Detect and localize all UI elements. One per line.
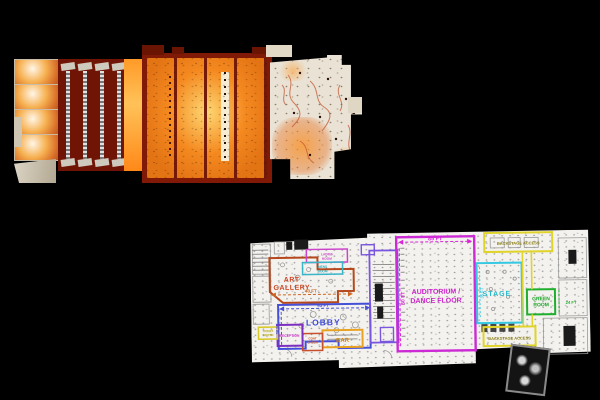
mens-room-label: MENS — [318, 265, 327, 269]
bar-label: BAR — [336, 338, 350, 344]
scan-vein-lines — [270, 55, 362, 179]
ladies-room-label: ROOM — [322, 257, 332, 261]
scan-room-tile — [14, 59, 60, 86]
scan-roof-tab — [142, 45, 164, 55]
auditorium-label: DANCE FLOOR — [410, 297, 461, 305]
coat-check-label: CHECK — [307, 340, 319, 344]
scan-noise — [147, 58, 267, 178]
truss-cap — [78, 158, 93, 167]
dim-lobby-width: 45 FT — [317, 303, 329, 308]
auditorium-label: AUDITORIUM / — [412, 288, 461, 296]
dim-green-room: 24 FT — [566, 300, 577, 305]
scan-glow-column — [124, 59, 142, 171]
backstage-top-label: BACKSTAGE ACCESS — [497, 240, 540, 246]
truss-cap — [95, 62, 110, 71]
truss-chain — [117, 71, 121, 159]
truss-cap — [95, 158, 110, 167]
ticket-booth-label: BOOTH — [263, 333, 274, 337]
truss-cap — [61, 158, 76, 167]
scan-wedge-tile — [14, 159, 56, 183]
dim-auditorium-width: 85 FT — [428, 236, 443, 242]
scan-room-tile — [14, 84, 60, 111]
scan-left-stub — [14, 117, 22, 147]
art-gallery-label: ART — [284, 277, 300, 284]
reception-label: RECEPTION — [280, 334, 300, 338]
stage-label: STAGE — [483, 291, 512, 298]
truss-chain — [66, 71, 70, 159]
pointcloud-top-view — [14, 45, 362, 193]
stairwell-room — [505, 344, 551, 397]
scan-light-tab — [266, 45, 292, 57]
dim-lobby-depth: 30 FT — [275, 323, 280, 334]
scan-right-stub — [348, 97, 362, 113]
truss-chain — [83, 71, 87, 159]
small-violet-room — [361, 245, 374, 255]
green-room-label: ROOM — [533, 302, 549, 308]
scan-stage-flytower — [58, 59, 126, 171]
backstage-bottom-label: BACKSTAGE ACCESS — [488, 335, 531, 341]
art-gallery-outline — [269, 257, 354, 303]
mens-room-label: ROOM — [318, 269, 328, 273]
small-violet-room — [380, 327, 393, 341]
scan-roof-tab — [172, 47, 184, 54]
art-gallery-label: GALLERY — [273, 285, 310, 293]
dim-auditorium-depth: 60 FT — [400, 292, 406, 305]
scan-auditorium-roof — [142, 53, 272, 183]
screenshot-root: 85 FT 60 FT 45 FT 30 FT 40 FT 35 FT 24 F… — [0, 0, 600, 400]
truss-cap — [61, 62, 76, 71]
scan-lobby-roof — [270, 55, 362, 179]
lobby-label: LOBBY — [306, 317, 341, 327]
truss-chain — [100, 71, 104, 159]
truss-cap — [78, 62, 93, 71]
